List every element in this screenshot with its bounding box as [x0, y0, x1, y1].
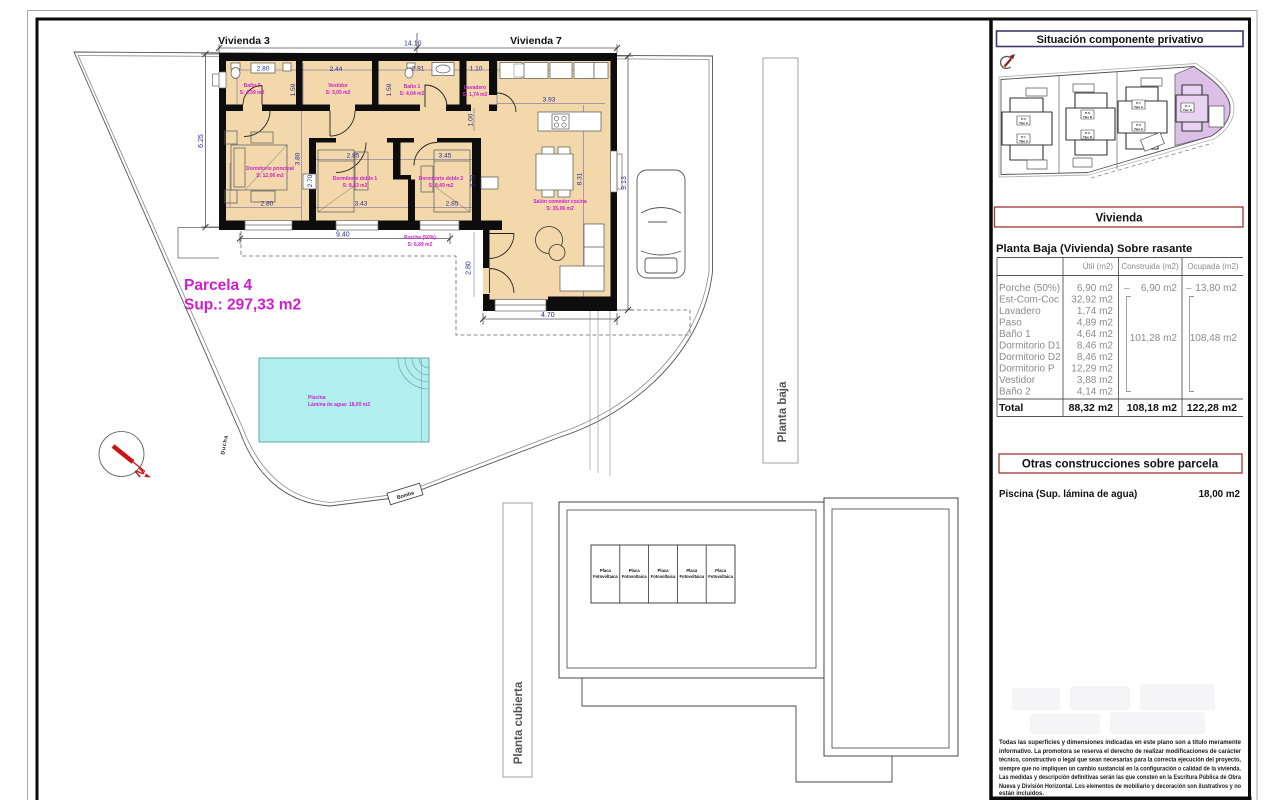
svg-text:Planta Baja (Vivienda) Sobre r: Planta Baja (Vivienda) Sobre rasante — [996, 243, 1192, 255]
svg-text:Las medidas y descripción defi: Las medidas y descripción definitivas se… — [999, 774, 1241, 781]
svg-text:108,48 m2: 108,48 m2 — [1190, 333, 1238, 344]
svg-text:8.31: 8.31 — [577, 172, 584, 185]
svg-text:Tipo A: Tipo A — [1019, 139, 1029, 143]
svg-text:2.80: 2.80 — [257, 66, 270, 73]
svg-text:Paso: Paso — [999, 318, 1022, 329]
svg-text:2.70: 2.70 — [470, 174, 477, 187]
svg-text:Situación componente privativo: Situación componente privativo — [1037, 34, 1204, 46]
svg-text:18,00 m2: 18,00 m2 — [1199, 489, 1241, 500]
svg-text:Tipo B: Tipo B — [1083, 135, 1092, 139]
svg-text:101,28 m2: 101,28 m2 — [1130, 333, 1178, 344]
svg-text:Placa: Placa — [600, 568, 612, 573]
svg-text:Lavadero: Lavadero — [999, 306, 1041, 317]
svg-text:técnico, constructivo o legal: técnico, constructivo o legal que sean n… — [999, 757, 1241, 764]
svg-text:Fotovoltaica: Fotovoltaica — [708, 574, 733, 579]
svg-text:Piscina (Sup. lámina de agua): Piscina (Sup. lámina de agua) — [999, 489, 1137, 500]
svg-text:Planta cubierta: Planta cubierta — [513, 681, 525, 764]
svg-text:108,18 m2: 108,18 m2 — [1127, 402, 1177, 414]
svg-text:S: 1,74 m2: S: 1,74 m2 — [463, 92, 488, 98]
svg-text:Vestidor: Vestidor — [328, 83, 348, 89]
svg-text:Vivienda: Vivienda — [1095, 213, 1143, 225]
svg-text:2.85: 2.85 — [446, 201, 459, 208]
svg-text:13,80 m2: 13,80 m2 — [1195, 283, 1237, 294]
svg-text:Piscina: Piscina — [308, 395, 326, 401]
svg-text:Placa: Placa — [629, 568, 641, 573]
svg-text:3.45: 3.45 — [439, 153, 452, 160]
svg-text:Vestidor: Vestidor — [999, 375, 1036, 386]
svg-text:9.40: 9.40 — [336, 232, 350, 239]
svg-text:Salón comedor cocina: Salón comedor cocina — [533, 199, 587, 205]
svg-text:Sup.: 297,33 m2: Sup.: 297,33 m2 — [184, 297, 301, 314]
svg-text:2.44: 2.44 — [330, 66, 343, 73]
svg-text:Dormitorio D1: Dormitorio D1 — [999, 341, 1061, 352]
svg-text:Tipo B: Tipo B — [1083, 115, 1092, 119]
svg-text:3.93: 3.93 — [543, 97, 556, 104]
svg-text:32,92 m2: 32,92 m2 — [1071, 295, 1113, 306]
svg-text:Tipo A: Tipo A — [1019, 121, 1029, 125]
svg-text:Est-Com-Coc: Est-Com-Coc — [999, 295, 1059, 306]
svg-text:Todas las superficies y dimens: Todas las superficies y dimensiones indi… — [999, 739, 1241, 746]
svg-text:Fotovoltaica: Fotovoltaica — [651, 574, 676, 579]
svg-text:Baño 2: Baño 2 — [999, 387, 1031, 398]
svg-text:Nueva y División Horizontal. L: Nueva y División Horizontal. Los element… — [999, 783, 1241, 790]
svg-text:Ocupada (m2): Ocupada (m2) — [1187, 262, 1238, 271]
svg-text:S: 4,04 m2: S: 4,04 m2 — [400, 91, 425, 97]
svg-text:S: 8,49 m2: S: 8,49 m2 — [429, 183, 454, 189]
svg-text:Lámina de agua: 18,00 m2: Lámina de agua: 18,00 m2 — [308, 402, 370, 408]
svg-text:S: 8,43 m2: S: 8,43 m2 — [343, 183, 368, 189]
svg-text:4.70: 4.70 — [541, 312, 555, 319]
svg-text:6.25: 6.25 — [198, 134, 205, 148]
svg-text:4,64 m2: 4,64 m2 — [1077, 329, 1114, 340]
svg-text:Tipo A: Tipo A — [1134, 105, 1144, 109]
svg-text:Placa: Placa — [658, 568, 670, 573]
svg-text:Placa: Placa — [715, 568, 727, 573]
svg-text:Baño 3: Baño 3 — [244, 83, 261, 89]
svg-text:Fotovoltaica: Fotovoltaica — [679, 574, 704, 579]
svg-text:1.10: 1.10 — [470, 66, 483, 73]
svg-text:Dormitorio doble 2: Dormitorio doble 2 — [419, 176, 464, 182]
svg-text:S: 4,59 m2: S: 4,59 m2 — [240, 90, 265, 96]
svg-text:6,90 m2: 6,90 m2 — [1077, 283, 1114, 294]
svg-text:2.80: 2.80 — [466, 261, 473, 275]
svg-text:–: – — [1186, 283, 1192, 294]
svg-text:1.59: 1.59 — [290, 83, 297, 96]
svg-text:Vivienda 3: Vivienda 3 — [218, 35, 270, 47]
svg-text:2.70: 2.70 — [307, 174, 314, 187]
svg-text:3.43: 3.43 — [355, 201, 368, 208]
svg-text:están incluidos.: están incluidos. — [999, 790, 1044, 797]
svg-text:122,28 m2: 122,28 m2 — [1187, 402, 1237, 414]
svg-text:2.91: 2.91 — [412, 66, 425, 73]
svg-text:4,89 m2: 4,89 m2 — [1077, 318, 1114, 329]
svg-text:Porche (50%): Porche (50%) — [999, 283, 1060, 294]
svg-text:8,46 m2: 8,46 m2 — [1077, 341, 1114, 352]
svg-text:Construida (m2): Construida (m2) — [1121, 262, 1179, 271]
svg-text:Tipo B: Tipo B — [1183, 108, 1192, 112]
svg-text:Baño 1: Baño 1 — [999, 329, 1031, 340]
svg-text:Vivienda 7: Vivienda 7 — [510, 35, 562, 47]
svg-text:4,14 m2: 4,14 m2 — [1077, 387, 1114, 398]
svg-text:Baño 1: Baño 1 — [404, 84, 421, 90]
svg-text:S: 35,06 m2: S: 35,06 m2 — [546, 206, 574, 212]
svg-text:Lavadero: Lavadero — [464, 85, 486, 91]
svg-text:siempre que no impliquen un ca: siempre que no impliquen un cambio susta… — [999, 765, 1241, 772]
svg-text:1.59: 1.59 — [386, 83, 393, 96]
svg-text:Fotovoltaica: Fotovoltaica — [622, 574, 647, 579]
svg-text:Placa: Placa — [686, 568, 698, 573]
svg-text:12,29 m2: 12,29 m2 — [1071, 364, 1113, 375]
svg-text:Tipo A: Tipo A — [1134, 127, 1144, 131]
svg-text:6,90 m2: 6,90 m2 — [1141, 283, 1178, 294]
svg-text:Planta baja: Planta baja — [777, 381, 789, 442]
svg-text:Fotovoltaica: Fotovoltaica — [593, 574, 618, 579]
svg-text:88,32 m2: 88,32 m2 — [1069, 402, 1114, 414]
svg-text:3,88 m2: 3,88 m2 — [1077, 375, 1114, 386]
svg-text:1,74 m2: 1,74 m2 — [1077, 306, 1114, 317]
svg-text:Total: Total — [999, 402, 1023, 414]
svg-text:Dormitorio doble 1: Dormitorio doble 1 — [333, 176, 378, 182]
svg-text:2.85: 2.85 — [347, 153, 360, 160]
svg-text:S: 6,89 m2: S: 6,89 m2 — [408, 242, 433, 248]
svg-text:informativo. La promotora se r: informativo. La promotora se reserva el … — [999, 748, 1241, 755]
svg-text:Útil (m2): Útil (m2) — [1083, 262, 1114, 271]
svg-text:Parcela 4: Parcela 4 — [184, 277, 252, 294]
svg-text:Dormitorio P: Dormitorio P — [999, 364, 1055, 375]
svg-text:3.80: 3.80 — [295, 152, 302, 165]
svg-text:1.00: 1.00 — [468, 113, 475, 126]
svg-text:Porche (50%): Porche (50%) — [404, 235, 436, 241]
svg-text:–: – — [1124, 283, 1130, 294]
svg-text:8,46 m2: 8,46 m2 — [1077, 352, 1114, 363]
svg-text:S: 3,05 m2: S: 3,05 m2 — [326, 90, 351, 96]
svg-text:S: 12,06 m2: S: 12,06 m2 — [256, 173, 284, 179]
svg-text:Dormitorio D2: Dormitorio D2 — [999, 352, 1061, 363]
svg-text:Dormitorio principal: Dormitorio principal — [246, 166, 294, 172]
svg-text:Otras construcciones sobre par: Otras construcciones sobre parcela — [1022, 459, 1219, 471]
svg-text:2.80: 2.80 — [261, 201, 274, 208]
